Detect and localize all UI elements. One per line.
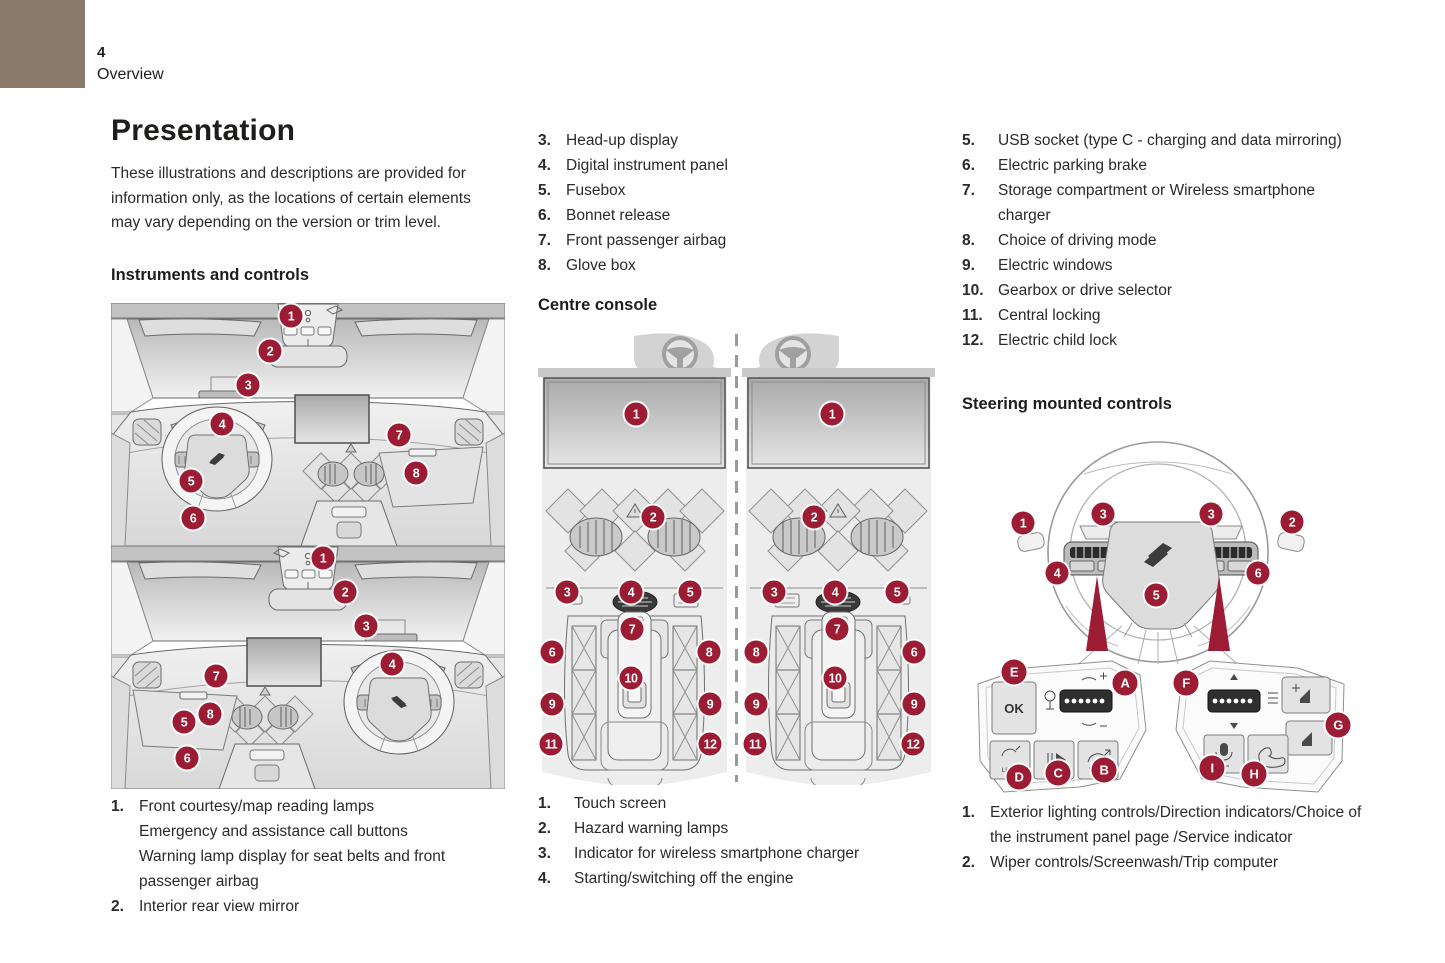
callout-6: 6 [1247, 562, 1270, 585]
left-stalk [1017, 531, 1046, 552]
list-item: 1. Front courtesy/map reading lamps Emer… [111, 794, 511, 894]
callout-9: 9 [903, 693, 926, 716]
callout-1: 1 [280, 305, 303, 328]
right-stalk [1277, 531, 1306, 552]
callout-4: 4 [620, 581, 643, 604]
heading-instruments-controls: Instruments and controls [111, 266, 309, 285]
callout-B: B [1092, 758, 1117, 783]
callout-1: 1 [821, 403, 844, 426]
svg-text:OK: OK [1004, 701, 1024, 716]
callout-C: C [1046, 761, 1071, 786]
callout-D: D [1007, 765, 1032, 790]
heading-steering-controls: Steering mounted controls [962, 395, 1172, 414]
callout-1: 1 [1012, 512, 1035, 535]
callout-12: 12 [699, 733, 722, 756]
callout-3: 3 [1092, 503, 1115, 526]
intro-text: These illustrations and descriptions are… [111, 162, 503, 236]
callout-3: 3 [763, 581, 786, 604]
thumbwheel [1060, 690, 1112, 712]
callout-F: F [1174, 671, 1199, 696]
dashboard-diagram: 1 2 3 4 5 6 7 8 1 2 3 4 7 8 5 6 [111, 303, 505, 789]
corner-tab [0, 0, 85, 88]
callout-6: 6 [182, 507, 205, 530]
callout-2: 2 [642, 506, 665, 529]
callout-5: 5 [1145, 584, 1168, 607]
dashboard-rhd-art [111, 546, 505, 789]
dashboard-lhd-art [111, 303, 505, 546]
callout-11: 11 [744, 733, 767, 756]
console-lhd-art [538, 330, 731, 785]
callout-9: 9 [745, 693, 768, 716]
callout-8: 8 [405, 462, 428, 485]
callout-G: G [1326, 713, 1351, 738]
console-legend-list: 1.Touch screen 2.Hazard warning lamps 3.… [538, 791, 938, 891]
instruments-legend-list: 1. Front courtesy/map reading lamps Emer… [111, 794, 511, 919]
callout-I: I [1200, 756, 1225, 781]
heading-centre-console: Centre console [538, 296, 657, 315]
callout-4: 4 [824, 581, 847, 604]
steering-legend-list: 1.Exterior lighting controls/Direction i… [962, 800, 1362, 875]
volume-up-button [1282, 677, 1330, 713]
callout-8: 8 [745, 641, 768, 664]
callout-E: E [1002, 660, 1027, 685]
callout-4: 4 [1046, 562, 1069, 585]
callout-3: 3 [237, 374, 260, 397]
page-number: 4 [97, 44, 105, 61]
callout-2: 2 [803, 506, 826, 529]
page-section: Overview [97, 66, 164, 84]
callout-5: 5 [679, 581, 702, 604]
callout-4: 4 [381, 653, 404, 676]
console-rhd-art [742, 330, 935, 785]
callout-10: 10 [620, 667, 643, 690]
callout-10: 10 [824, 667, 847, 690]
callout-A: A [1113, 671, 1138, 696]
centre-console-diagram: 1 2 3 4 5 6 7 8 9 9 10 11 12 1 2 3 4 5 6… [538, 330, 935, 785]
callout-2: 2 [259, 340, 282, 363]
callout-2: 2 [1281, 511, 1304, 534]
right-top-list: 5.USB socket (type C - charging and data… [962, 128, 1362, 353]
list-item: 2. Interior rear view mirror [111, 894, 511, 919]
callout-5: 5 [173, 711, 196, 734]
callout-5: 5 [886, 581, 909, 604]
callout-3: 3 [355, 615, 378, 638]
callout-7: 7 [826, 618, 849, 641]
callout-6: 6 [541, 641, 564, 664]
callout-7: 7 [621, 618, 644, 641]
callout-H: H [1242, 762, 1267, 787]
callout-7: 7 [205, 665, 228, 688]
callout-9: 9 [541, 693, 564, 716]
callout-12: 12 [902, 733, 925, 756]
callout-5: 5 [180, 470, 203, 493]
callout-8: 8 [199, 703, 222, 726]
callout-3: 3 [556, 581, 579, 604]
callout-8: 8 [698, 641, 721, 664]
callout-11: 11 [540, 733, 563, 756]
callout-9: 9 [699, 693, 722, 716]
page-title: Presentation [111, 114, 295, 148]
callout-3: 3 [1200, 503, 1223, 526]
callout-6: 6 [176, 747, 199, 770]
callout-6: 6 [903, 641, 926, 664]
callout-1: 1 [625, 403, 648, 426]
middle-top-list: 3.Head-up display 4.Digital instrument p… [538, 128, 938, 278]
dashed-divider [735, 334, 738, 782]
callout-2: 2 [334, 581, 357, 604]
ok-button: OK [992, 682, 1036, 734]
callout-4: 4 [211, 413, 234, 436]
steering-wheel-art: OK LIMIT [962, 430, 1360, 795]
callout-1: 1 [312, 547, 335, 570]
callout-7: 7 [388, 424, 411, 447]
steering-wheel-diagram: OK LIMIT [962, 430, 1360, 795]
